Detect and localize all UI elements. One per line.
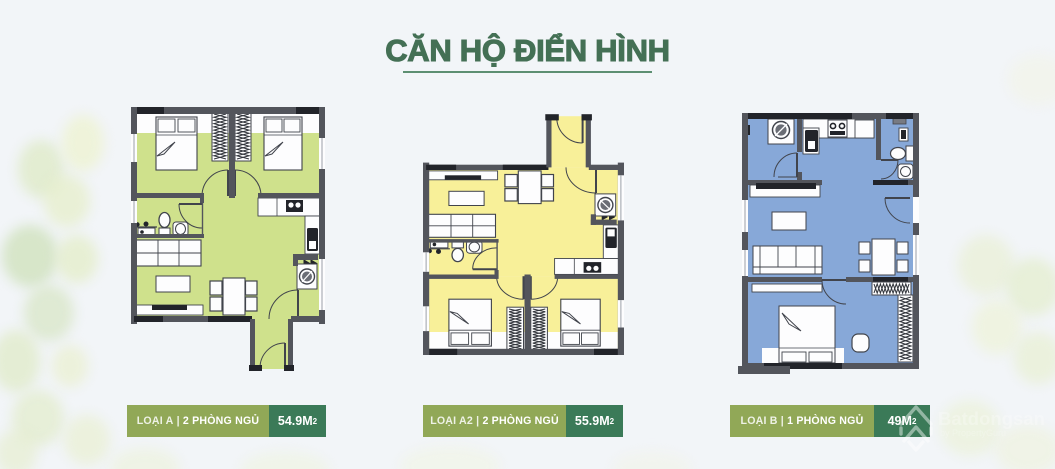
svg-text:by PropertyGuru: by PropertyGuru <box>940 428 1006 438</box>
svg-text:Batdongsan: Batdongsan <box>938 408 1045 429</box>
